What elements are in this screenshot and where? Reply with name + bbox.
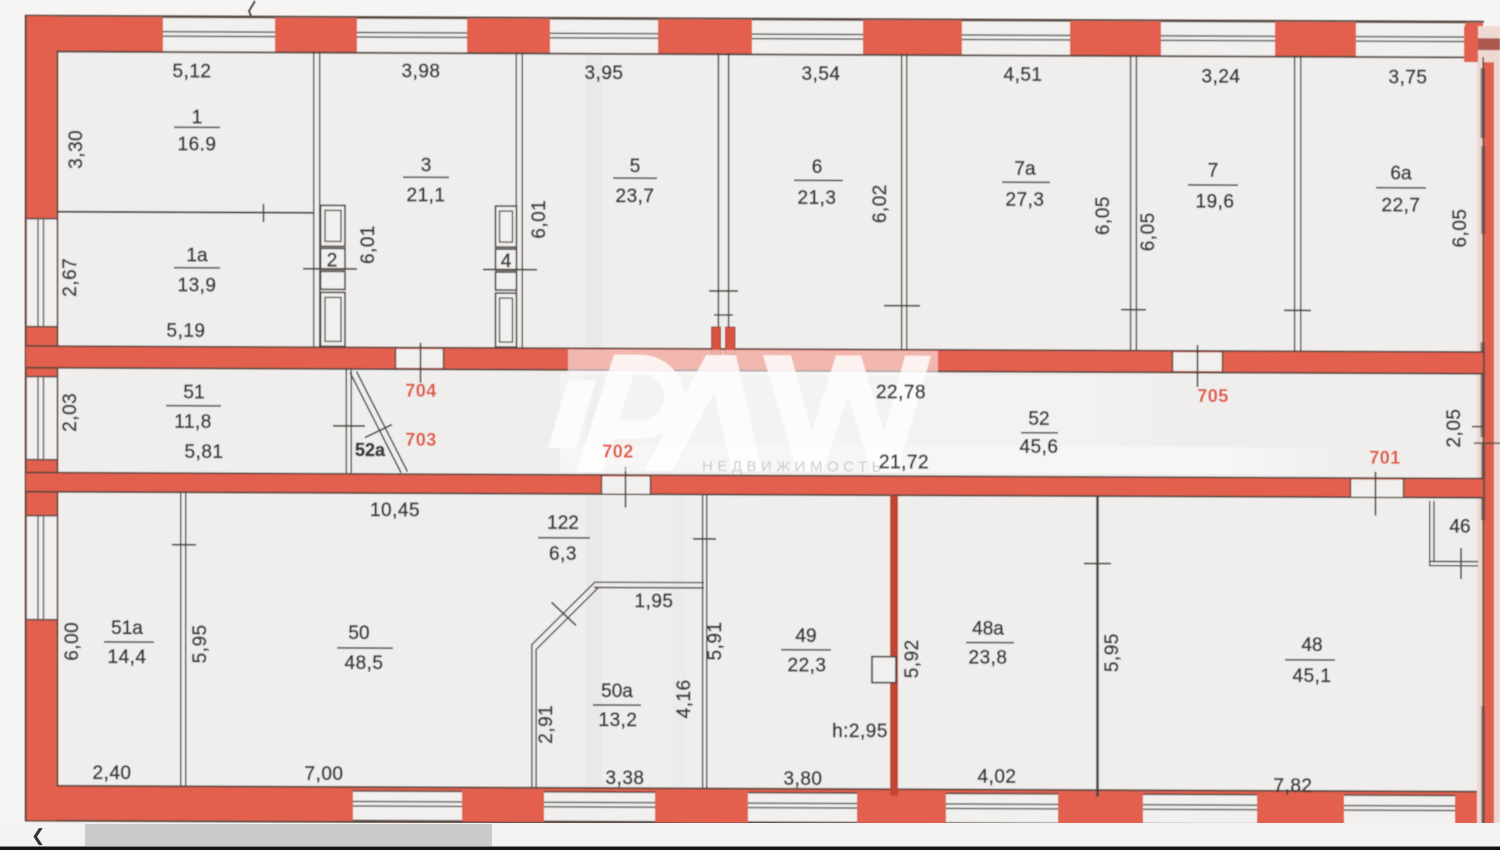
svg-text:51: 51	[183, 382, 204, 403]
svg-text:h:2,95: h:2,95	[832, 721, 888, 742]
svg-text:48: 48	[1301, 635, 1322, 656]
svg-text:4: 4	[501, 251, 512, 272]
svg-text:7,82: 7,82	[1274, 776, 1313, 797]
svg-text:51a: 51a	[111, 618, 143, 639]
svg-text:2,40: 2,40	[93, 763, 132, 784]
svg-text:6,01: 6,01	[358, 225, 379, 264]
svg-text:49: 49	[795, 626, 816, 647]
svg-text:21,72: 21,72	[879, 452, 929, 473]
svg-text:6,05: 6,05	[1450, 209, 1471, 248]
svg-text:13,9: 13,9	[178, 275, 217, 296]
svg-text:22,3: 22,3	[788, 655, 827, 676]
svg-text:703: 703	[405, 430, 437, 450]
svg-text:5,19: 5,19	[167, 321, 206, 342]
svg-text:6,00: 6,00	[62, 622, 83, 661]
svg-text:2,03: 2,03	[60, 393, 81, 432]
svg-text:1a: 1a	[186, 245, 208, 266]
svg-text:16.9: 16.9	[178, 134, 217, 155]
svg-text:701: 701	[1369, 448, 1401, 468]
svg-text:❮: ❮	[31, 826, 45, 846]
svg-text:2,91: 2,91	[536, 705, 557, 744]
svg-text:2,67: 2,67	[60, 258, 81, 297]
svg-text:45,1: 45,1	[1293, 666, 1332, 687]
svg-text:6,3: 6,3	[549, 544, 577, 565]
svg-text:5: 5	[630, 156, 641, 177]
svg-text:1,95: 1,95	[635, 591, 674, 612]
svg-text:11,8: 11,8	[174, 412, 212, 433]
svg-text:5,92: 5,92	[902, 639, 923, 678]
svg-text:4,16: 4,16	[674, 679, 695, 718]
svg-text:2,05: 2,05	[1444, 409, 1465, 448]
svg-text:7: 7	[1208, 161, 1219, 182]
svg-text:3,54: 3,54	[802, 64, 841, 85]
svg-text:50: 50	[348, 623, 369, 644]
svg-text:6,02: 6,02	[870, 184, 891, 223]
svg-text:НЕДВИЖИМОСТЬ: НЕДВИЖИМОСТЬ	[702, 458, 886, 476]
svg-text:22,7: 22,7	[1382, 195, 1421, 216]
svg-text:5,95: 5,95	[190, 624, 211, 663]
svg-text:19,6: 19,6	[1196, 191, 1235, 212]
svg-text:3,30: 3,30	[66, 130, 87, 169]
svg-text:6,05: 6,05	[1138, 212, 1159, 251]
svg-text:6a: 6a	[1390, 163, 1412, 184]
svg-text:27,3: 27,3	[1006, 190, 1045, 211]
svg-text:5,95: 5,95	[1102, 633, 1123, 672]
svg-text:5,91: 5,91	[705, 621, 726, 660]
svg-text:3,80: 3,80	[784, 769, 823, 790]
svg-text:4,51: 4,51	[1004, 65, 1043, 86]
svg-text:6,01: 6,01	[529, 200, 550, 239]
svg-text:704: 704	[405, 381, 437, 401]
svg-text:7,00: 7,00	[305, 764, 344, 785]
svg-text:52: 52	[1028, 409, 1049, 430]
svg-text:14,4: 14,4	[108, 647, 147, 668]
svg-text:46: 46	[1449, 517, 1470, 538]
svg-text:4,02: 4,02	[978, 767, 1017, 788]
svg-text:5,81: 5,81	[185, 442, 224, 463]
svg-text:48a: 48a	[972, 619, 1004, 640]
svg-text:10,45: 10,45	[370, 500, 420, 521]
svg-text:702: 702	[602, 441, 634, 461]
svg-text:3,75: 3,75	[1389, 67, 1428, 88]
svg-text:1: 1	[192, 107, 203, 128]
svg-text:5,12: 5,12	[173, 61, 212, 82]
svg-text:3,38: 3,38	[606, 768, 645, 789]
svg-text:50a: 50a	[601, 681, 633, 702]
svg-text:13,2: 13,2	[599, 710, 638, 731]
svg-text:705: 705	[1197, 386, 1229, 406]
svg-text:22,78: 22,78	[876, 382, 926, 403]
svg-text:52a: 52a	[355, 440, 386, 460]
svg-text:45,6: 45,6	[1020, 437, 1059, 458]
svg-text:3,95: 3,95	[585, 63, 624, 84]
svg-text:6,05: 6,05	[1093, 196, 1114, 235]
svg-text:48,5: 48,5	[345, 653, 384, 674]
svg-text:7a: 7a	[1014, 159, 1036, 180]
svg-text:3: 3	[421, 155, 432, 176]
svg-text:2: 2	[327, 250, 338, 271]
svg-text:122: 122	[547, 513, 579, 534]
svg-text:21,3: 21,3	[798, 188, 837, 209]
svg-text:21,1: 21,1	[407, 185, 446, 206]
svg-text:23,7: 23,7	[616, 186, 655, 207]
svg-text:3,24: 3,24	[1202, 66, 1241, 87]
svg-text:3,98: 3,98	[402, 61, 441, 82]
svg-text:23,8: 23,8	[969, 648, 1008, 669]
svg-text:6: 6	[812, 157, 823, 178]
